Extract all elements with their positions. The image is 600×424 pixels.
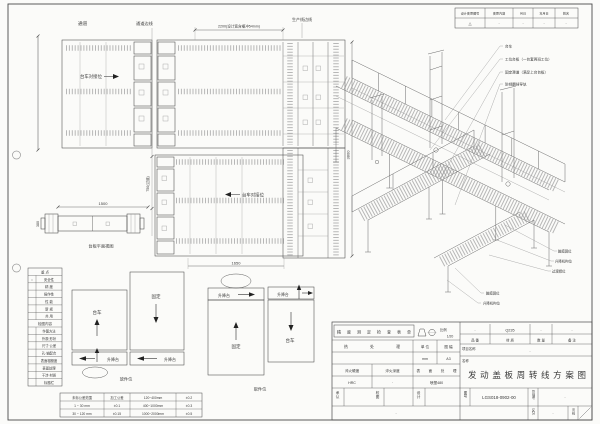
iso-view — [333, 50, 565, 292]
dim-2200: 2200(设计宽含缓冲54mm) — [218, 24, 260, 29]
qty-value: · — [540, 329, 541, 333]
detail-load-position: 台车 升降台 放件位 固定 升降台 — [72, 272, 184, 383]
tol-cell: 1000~2000mm — [142, 412, 164, 416]
tol-cell: ±0.3 — [186, 404, 193, 408]
design-label: 设计 — [416, 390, 421, 399]
checklist-item: 外观·形状 — [42, 336, 57, 341]
revision-header-4: 姓名 — [563, 11, 569, 16]
tol-cell: ±0.5 — [186, 412, 193, 416]
hardness-label: 淬火硬度 — [345, 368, 360, 373]
revision-header-0: 设计变更图号 — [461, 11, 480, 16]
load-position-caption: 放件位 — [120, 376, 133, 383]
passage-label: 通道 — [78, 20, 88, 27]
checklist-item: 标题栏 — [44, 380, 55, 385]
tol-cell: ±0.2 — [186, 396, 193, 400]
unload-position-caption: 取件位 — [254, 386, 267, 393]
checklist-item: 共 用 — [45, 314, 53, 319]
hardness-value: HRC — [348, 381, 356, 385]
part-no-value: · — [474, 329, 475, 333]
revision-table: 设计变更图号 变更内容 月日 年月日 姓名 △ · · · · — [455, 8, 578, 28]
dim-1650: 1650 — [232, 261, 242, 266]
drawing-no-label: 图号 — [463, 391, 467, 398]
passage-edge-label: 通道边线 — [136, 20, 154, 27]
iso-label-touch-panel-2: 触摸屏位 — [486, 291, 500, 296]
dim-380: 380 — [36, 221, 40, 227]
checklist-item: 表面粗糙度 — [41, 358, 58, 363]
sheet-value: A3 — [446, 357, 450, 361]
iso-label-touch-panel: 触摸屏位 — [558, 249, 572, 254]
remark-label: 备 注 — [568, 338, 576, 343]
remark-value: · — [571, 329, 572, 333]
tolerance-table: 未标公差范围 加工公差 120~400mm ±0.2 1 ~ 30 mm ±0.… — [60, 393, 202, 417]
tol-cell: 1 ~ 30 mm — [74, 404, 90, 408]
checklist-item: 安全性 — [44, 277, 55, 282]
depth-label: 淬火深度 — [385, 368, 400, 373]
dock-label-bottom: 台车对接位 — [242, 192, 265, 199]
material-value: Q235 — [505, 329, 514, 333]
iso-label-slide: 固定滑道（满足上台台板） — [505, 70, 548, 75]
lift-label: 升降台 — [107, 356, 119, 362]
surface-value: 喷塑480 — [430, 380, 443, 385]
checklist-item: 尺寸·公差 — [42, 343, 57, 348]
checklist-mark: ○ — [31, 278, 33, 282]
class-label: 区分 — [531, 408, 535, 415]
page-label: 页码 — [571, 408, 575, 415]
qty-label: 数 量 — [537, 338, 545, 343]
plan-view-bottom: 台车对接位 — [155, 148, 345, 258]
revision-value-0: △ — [468, 21, 472, 26]
dock-label-top: 台车对接位 — [80, 73, 103, 80]
revision-header-2: 月日 — [520, 12, 526, 16]
check-label: 校图 — [375, 390, 380, 399]
iso-label-guard-rail: 防倾翻挡导轨 — [505, 82, 527, 87]
checklist-table: 重 点 ○ 安全性 精 度 操作性 性 能 新 规 共 用 检图内容 作图方法 … — [28, 268, 62, 386]
scale-label: 比例 — [440, 327, 447, 332]
lift-label: 升降台 — [218, 292, 230, 298]
iso-label-lift-unit-2: 升降机构位 — [483, 301, 501, 306]
sheet-label: 图 幅 — [444, 344, 453, 349]
unit-value: mm — [422, 357, 428, 361]
revision-header-3: 年月日 — [539, 11, 548, 16]
checklist-item: 精 度 — [45, 284, 53, 289]
scale-value: 1/20 — [447, 335, 454, 339]
checklist-item: 干涉·材质 — [42, 373, 57, 378]
iso-label-platform: 工位台板（一台套两班工位） — [505, 57, 552, 62]
drawing-title: 发动盖板周转线方案图 — [468, 370, 586, 380]
bottom-note: · — [395, 411, 396, 416]
surface-label: 表 面 处 理 — [417, 368, 457, 373]
iso-label-cart: 台车 — [505, 44, 513, 49]
tol-cell: ±0.1 — [114, 404, 121, 408]
side-view-caption: 台板平面视图 — [88, 243, 113, 250]
tol-cell: 未标公差范围 — [72, 395, 92, 400]
checklist-item: 作图方法 — [42, 328, 56, 333]
revision-value-1: · — [498, 21, 499, 26]
checklist-item: 表面处理 — [42, 365, 56, 370]
title-block: 精度测定检查表单 比例 1/20 热 处 理 单 位 图 幅 mm A3 淬火硬… — [332, 322, 592, 420]
dim-1500: 1500 — [99, 201, 109, 206]
iso-label-transfer-roller: 过渡辊位 — [552, 269, 566, 274]
revision-value-2: · — [522, 21, 523, 26]
lift-label: 升降台 — [277, 292, 289, 297]
projection-symbol-icon — [418, 329, 437, 336]
iso-label-lift-unit: 升降机构位 — [555, 259, 573, 264]
checklist-item: 新 规 — [45, 306, 53, 311]
fixed-label: 固定 — [152, 293, 161, 300]
engineering-drawing-sheet: 台车对接位 台车对接位 — [0, 0, 600, 424]
mgmt-value: · — [564, 396, 565, 400]
cart-label: 台车 — [93, 309, 102, 316]
drawing-number: LGS018-0902-00 — [482, 395, 516, 400]
fixed-label: 固定 — [232, 343, 241, 350]
detail-unload-position: 升降台 固定 升降台 台车 取件位 — [208, 274, 314, 393]
depth-value: · — [392, 381, 393, 385]
sheet-frame — [8, 4, 592, 420]
drawing-name-label: 名称 — [462, 358, 469, 363]
revision-value-4: · — [565, 21, 566, 26]
side-view: 1500 380 台板平面视图 — [36, 201, 150, 250]
revision-header-1: 变更内容 — [493, 11, 505, 16]
cart-label: 台车 — [286, 337, 295, 344]
part-no-label: 品 番 — [471, 338, 479, 343]
dim-750: 750(过道) — [145, 176, 150, 192]
class-value: · — [552, 412, 553, 416]
plan-view-top: 台车对接位 — [62, 40, 345, 148]
checklist-section: 检图内容 — [38, 321, 52, 326]
project-value: · — [529, 350, 530, 354]
checklist-item: 性 能 — [45, 299, 53, 304]
tol-cell: 加工公差 — [110, 395, 124, 400]
lift-label: 升降台 — [164, 356, 176, 362]
approve-label: 承认 — [335, 390, 340, 399]
material-label: 材 质 — [506, 338, 514, 343]
cad-canvas: 台车对接位 台车对接位 — [0, 0, 600, 424]
checklist-item: 操作性 — [44, 292, 55, 297]
unit-label: 单 位 — [421, 344, 430, 349]
dim-3800: 3800 — [346, 150, 351, 160]
tol-cell: 400~1000mm — [143, 404, 164, 408]
mgmt-label: 管理号 — [531, 389, 535, 400]
checklist-item: 孔·轴配合 — [42, 351, 57, 356]
checklist-title: 重 点 — [41, 269, 49, 274]
revision-value-3: · — [543, 21, 544, 26]
check-form-title: 精度测定检查表单 — [337, 329, 411, 335]
project-label: 项目名称 — [462, 346, 476, 351]
tol-cell: 120~400mm — [144, 396, 163, 400]
production-edge-label: 生产线边线 — [292, 16, 312, 22]
heat-treatment-label: 热 处 理 — [344, 344, 400, 349]
tol-cell: ±0.15 — [113, 412, 121, 416]
tol-cell: 30 ~ 120 mm — [72, 412, 92, 416]
